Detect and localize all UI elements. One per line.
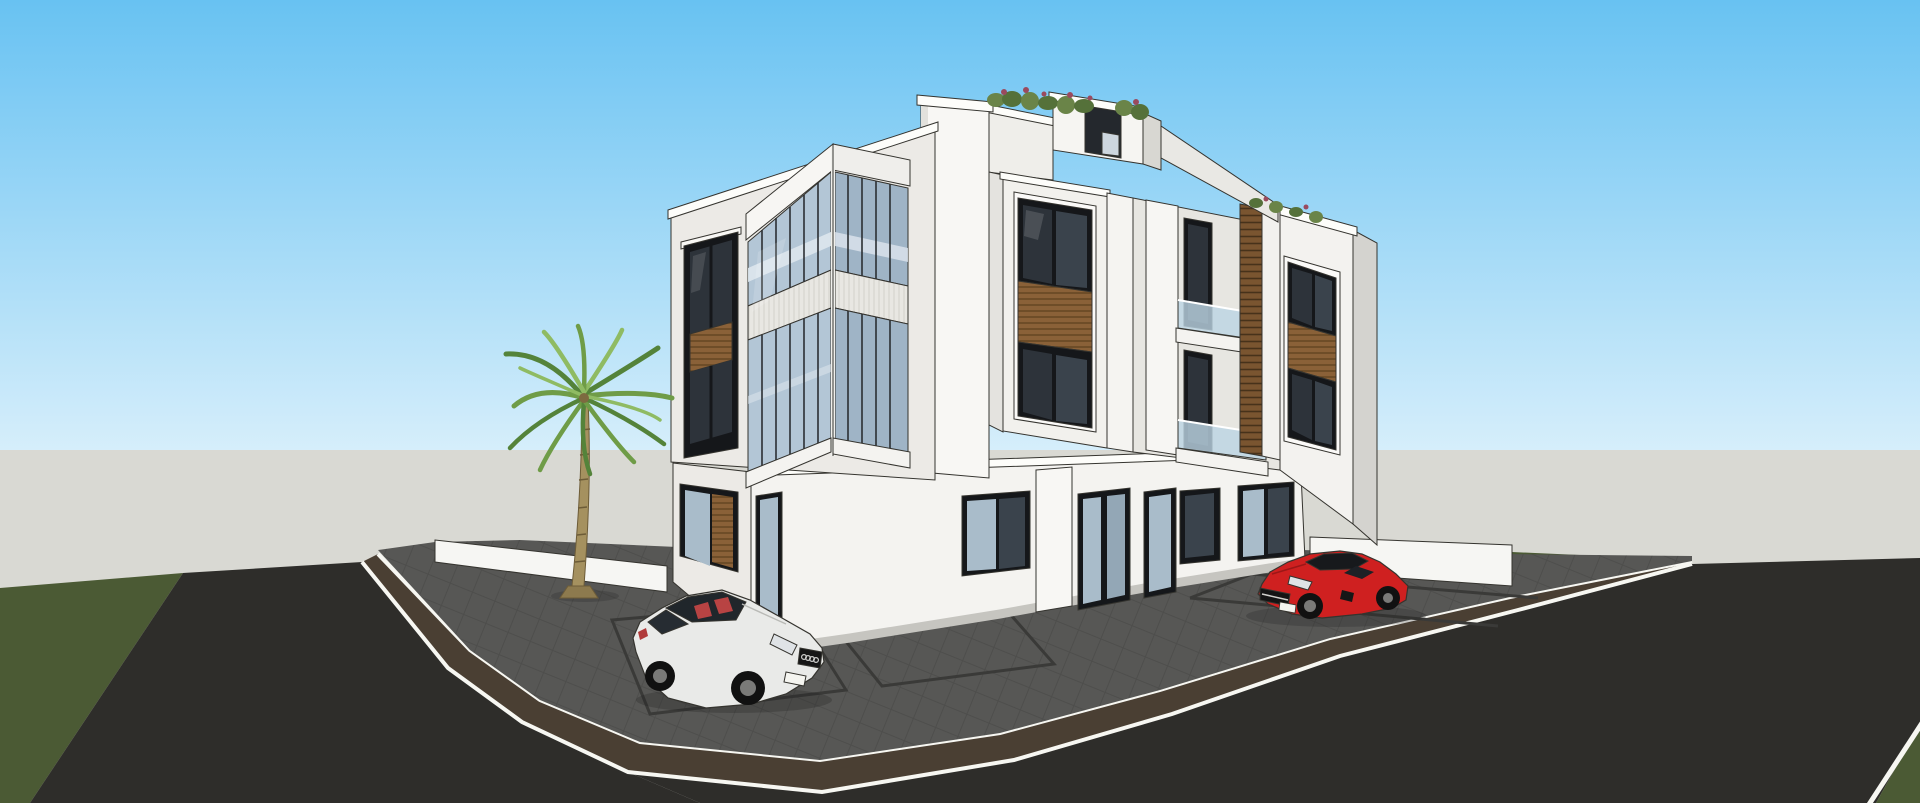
window-ground-front-2 — [1180, 488, 1220, 564]
palm-crown — [579, 393, 589, 403]
corner-glass-bay — [746, 144, 910, 488]
recess-strip — [989, 172, 1003, 432]
window-upper — [1018, 198, 1092, 292]
left-window-column — [681, 227, 741, 458]
center-window-block — [1000, 172, 1133, 452]
pilaster-entrance — [1036, 467, 1072, 612]
penthouse-side — [1143, 113, 1161, 170]
right-block-side-face — [1353, 230, 1377, 545]
window-lower — [1018, 342, 1092, 428]
window-ground-front-3 — [1238, 482, 1294, 561]
bay-glass-f3-right — [835, 172, 908, 286]
balcony-bay — [1133, 198, 1280, 476]
wood-shutter — [712, 494, 733, 568]
door-ground-front-2 — [1144, 488, 1176, 598]
architectural-render — [0, 0, 1920, 803]
window-ground-left — [680, 484, 738, 572]
wood-spandrel — [1018, 281, 1092, 352]
balcony-fin-left — [1146, 200, 1178, 455]
penthouse-window — [1102, 132, 1119, 156]
bay-glass-f2-right — [835, 308, 908, 452]
balcony-fin-right — [1262, 206, 1280, 460]
door-ground-front-1 — [1078, 488, 1130, 610]
right-block-window-stack — [1284, 256, 1340, 455]
window-ground-front-1 — [962, 491, 1030, 576]
center-fin-right — [1107, 193, 1133, 452]
wood-louver-screen — [1240, 204, 1262, 456]
